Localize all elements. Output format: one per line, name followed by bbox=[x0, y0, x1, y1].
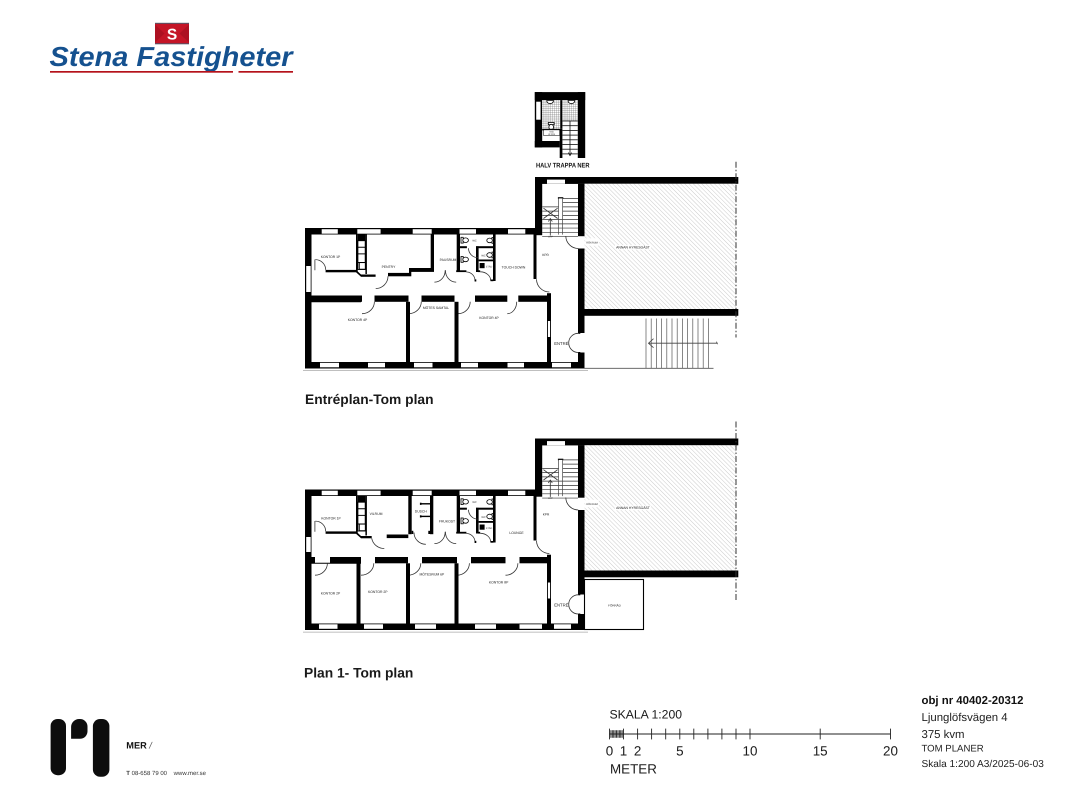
svg-text:SKALA 1:200: SKALA 1:200 bbox=[610, 708, 683, 722]
svg-text:RÖKRUM: RÖKRUM bbox=[586, 502, 598, 506]
svg-text:TOUCH DOWN: TOUCH DOWN bbox=[502, 266, 526, 270]
svg-text:Skala 1:200 A3/2025-06-03: Skala 1:200 A3/2025-06-03 bbox=[922, 759, 1045, 770]
svg-text:MÖTESRUM 6P: MÖTESRUM 6P bbox=[419, 573, 445, 577]
svg-text:KPR: KPR bbox=[543, 513, 550, 517]
svg-text:15: 15 bbox=[813, 744, 828, 759]
svg-text:STÄD: STÄD bbox=[486, 527, 493, 530]
svg-text:Plan 1- Tom plan: Plan 1- Tom plan bbox=[304, 666, 413, 681]
svg-text:5: 5 bbox=[676, 744, 683, 759]
svg-text:Ljunglöfsvägen 4: Ljunglöfsvägen 4 bbox=[922, 712, 1008, 724]
svg-text:KONTOR 8P: KONTOR 8P bbox=[489, 581, 509, 585]
svg-text:MÖTES SAMTAL: MÖTES SAMTAL bbox=[423, 306, 449, 310]
svg-text:20: 20 bbox=[883, 744, 898, 759]
svg-text:KONTOR 4P: KONTOR 4P bbox=[348, 318, 368, 322]
svg-text:PENTRY: PENTRY bbox=[382, 265, 396, 269]
svg-text:Entréplan-Tom plan: Entréplan-Tom plan bbox=[305, 392, 434, 407]
svg-text:KONTOR 1P: KONTOR 1P bbox=[321, 517, 341, 521]
svg-text:VFPFB: VFPFB bbox=[548, 133, 556, 136]
svg-text:ANNAN HYRESGÄST: ANNAN HYRESGÄST bbox=[616, 246, 650, 250]
svg-text:WC: WC bbox=[481, 255, 485, 258]
svg-text:ENTRÉ: ENTRÉ bbox=[554, 341, 568, 346]
svg-text:VILRUM: VILRUM bbox=[370, 512, 383, 516]
svg-text:ENTRÉ: ENTRÉ bbox=[554, 603, 568, 608]
svg-text:WC: WC bbox=[481, 516, 485, 519]
svg-text:UPP: UPP bbox=[548, 497, 553, 500]
svg-text:MER /: MER / bbox=[126, 741, 153, 751]
svg-text:STÄD: STÄD bbox=[486, 265, 493, 268]
svg-text:KPR: KPR bbox=[542, 253, 549, 257]
svg-text:TOM PLANER: TOM PLANER bbox=[922, 744, 984, 755]
svg-text:Stena Fastigheter: Stena Fastigheter bbox=[50, 41, 294, 72]
svg-text:LOUNGE: LOUNGE bbox=[509, 531, 524, 535]
svg-text:KONTOR 4P: KONTOR 4P bbox=[479, 316, 499, 320]
svg-text:FÖRRÅD: FÖRRÅD bbox=[608, 604, 622, 608]
svg-text:Gwb: Gwb bbox=[549, 130, 554, 133]
svg-text:10: 10 bbox=[743, 744, 758, 759]
svg-text:1: 1 bbox=[620, 744, 627, 759]
svg-text:FRUKOST: FRUKOST bbox=[439, 520, 455, 524]
svg-text:METER: METER bbox=[610, 762, 657, 777]
svg-text:KONTOR 2P: KONTOR 2P bbox=[321, 592, 341, 596]
svg-text:KONTOR 2P: KONTOR 2P bbox=[368, 590, 388, 594]
svg-text:UPP: UPP bbox=[548, 236, 553, 239]
svg-text:HALV TRAPPA NER: HALV TRAPPA NER bbox=[536, 162, 590, 169]
svg-text:ANNAN HYRESGÄST: ANNAN HYRESGÄST bbox=[616, 506, 650, 510]
svg-text:obj nr 40402-20312: obj nr 40402-20312 bbox=[922, 695, 1024, 707]
svg-text:RÖKRUM: RÖKRUM bbox=[586, 241, 598, 245]
svg-text:WC: WC bbox=[472, 501, 476, 504]
svg-text:375 kvm: 375 kvm bbox=[922, 729, 965, 741]
svg-text:2: 2 bbox=[634, 744, 641, 759]
svg-text:0: 0 bbox=[606, 744, 613, 759]
svg-text:WC: WC bbox=[472, 240, 476, 243]
svg-text:T 08-658 79 00 www.mer.se: T 08-658 79 00 www.mer.se bbox=[126, 770, 206, 777]
svg-text:KONTOR 1P: KONTOR 1P bbox=[321, 255, 341, 259]
svg-text:PAUSRUM: PAUSRUM bbox=[440, 258, 457, 262]
svg-text:DUSCH: DUSCH bbox=[415, 510, 428, 514]
